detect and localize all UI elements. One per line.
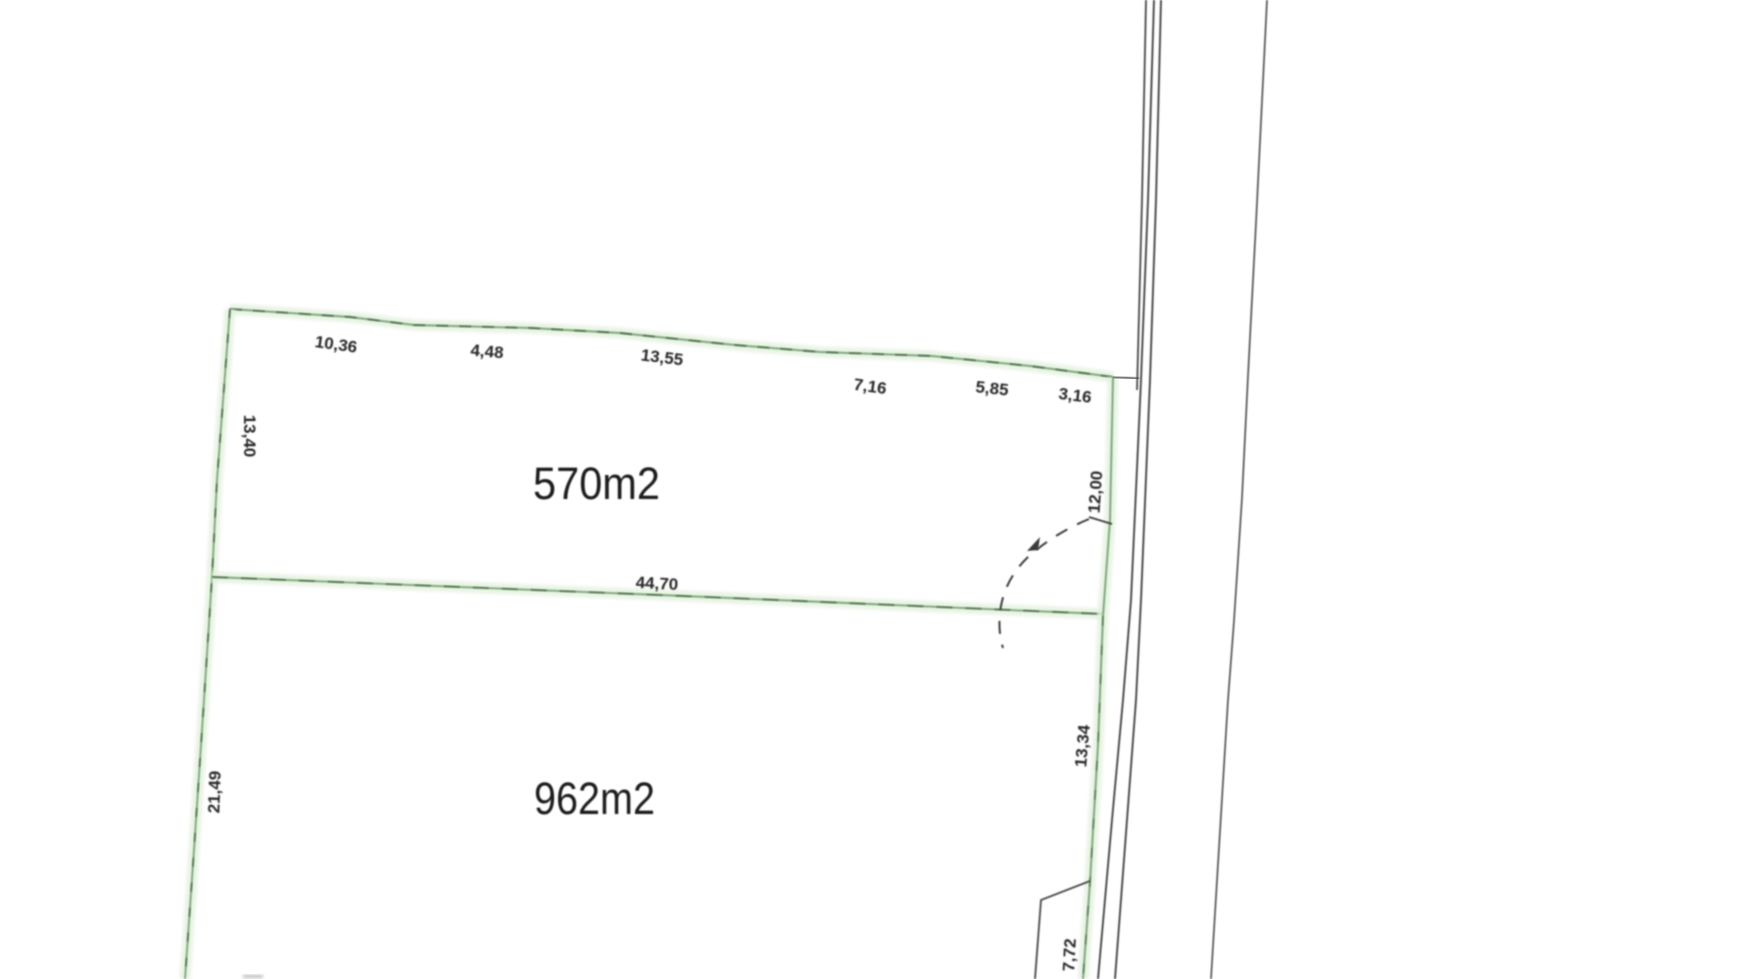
svg-text:12,00: 12,00: [1085, 470, 1107, 514]
svg-text:44,70: 44,70: [635, 573, 678, 594]
svg-text:13,40: 13,40: [240, 415, 259, 458]
svg-text:21,49: 21,49: [204, 770, 224, 813]
svg-text:7,72: 7,72: [1059, 938, 1080, 972]
svg-text:3,16: 3,16: [1057, 384, 1092, 407]
svg-text:4,48: 4,48: [470, 341, 505, 363]
svg-text:570m2: 570m2: [533, 458, 660, 509]
svg-text:5,85: 5,85: [975, 377, 1010, 399]
svg-text:962m2: 962m2: [534, 773, 655, 824]
svg-text:13,34: 13,34: [1071, 723, 1094, 768]
